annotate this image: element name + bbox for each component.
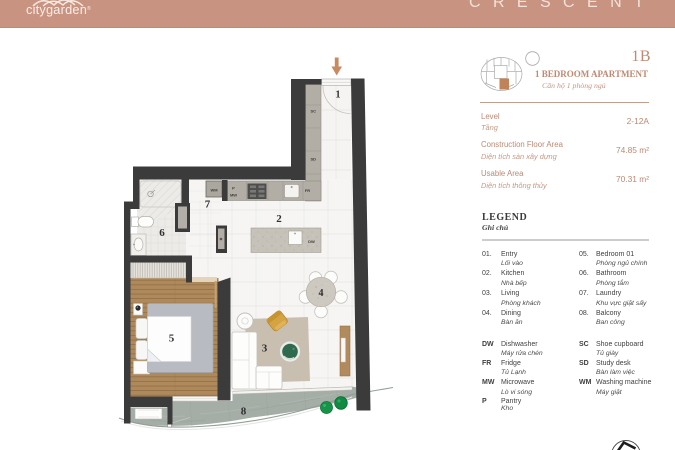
svg-text:MW: MW [230, 193, 237, 198]
svg-text:1: 1 [336, 90, 341, 101]
svg-text:8: 8 [241, 406, 247, 418]
svg-text:7: 7 [205, 199, 211, 211]
svg-text:FR: FR [305, 188, 310, 193]
svg-text:SD: SD [311, 157, 317, 162]
svg-text:5: 5 [169, 333, 175, 345]
svg-text:SC: SC [311, 109, 317, 114]
svg-text:WM: WM [210, 188, 218, 193]
svg-text:P: P [232, 186, 235, 191]
svg-text:4: 4 [319, 288, 324, 299]
svg-text:6: 6 [159, 227, 165, 239]
svg-text:DW: DW [308, 239, 315, 244]
svg-text:3: 3 [262, 343, 268, 355]
svg-text:2: 2 [276, 213, 282, 225]
